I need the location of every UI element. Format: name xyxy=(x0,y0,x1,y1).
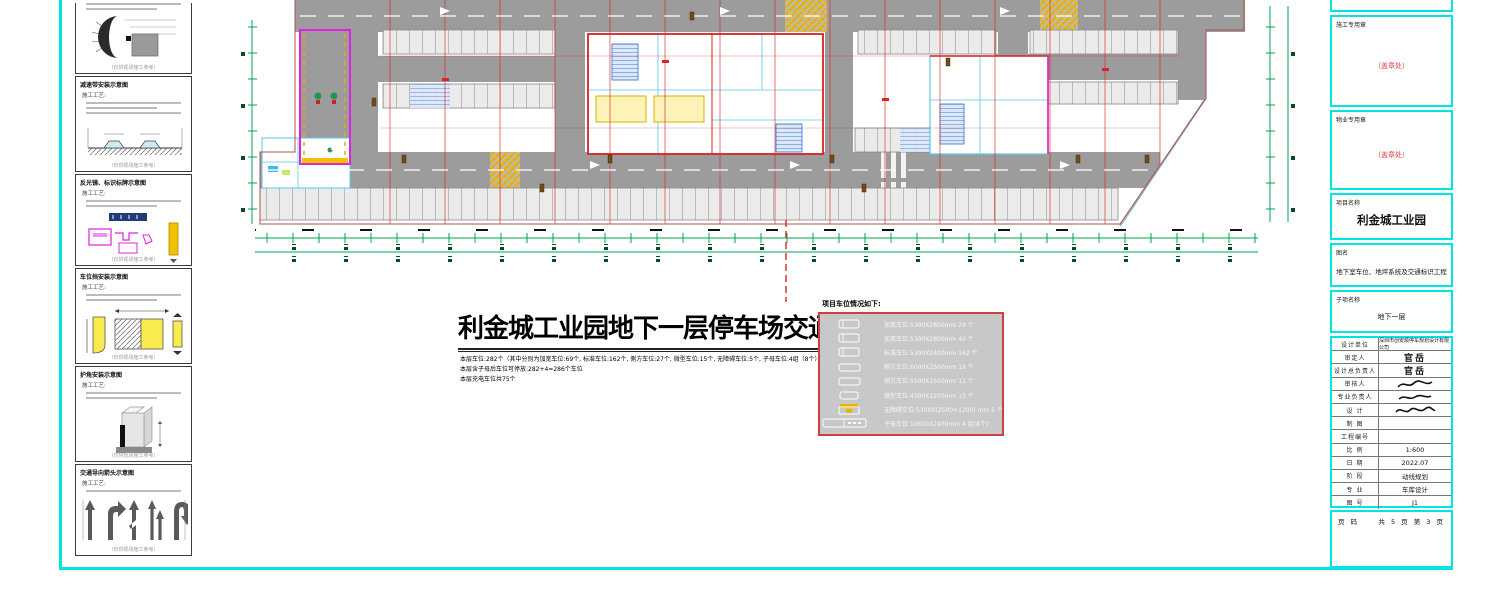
page-label: 页 码 xyxy=(1338,516,1359,526)
field-value: 官岳 xyxy=(1379,364,1451,376)
mini-stall-icon xyxy=(838,390,862,400)
stamp-label: 施工专用章 xyxy=(1332,17,1451,29)
panel-title: 减速带安装示意图 xyxy=(76,77,191,89)
table-row: 审核人 xyxy=(1332,378,1451,391)
wheel-stop-sketch xyxy=(81,305,187,359)
field-value: 动线规划 xyxy=(1379,470,1451,482)
legend-row: 无障碍车位:5300X(2500+1200) mm 5 个 xyxy=(820,402,1002,416)
table-row: 图 号J1 xyxy=(1332,496,1451,509)
field-label: 比 例 xyxy=(1332,444,1379,456)
table-row: 设计单位深圳市创安顺停车规划设计有限公司 xyxy=(1332,338,1451,351)
legend-label: 微型车位:4300X2200mm 15 个 xyxy=(884,391,974,400)
detail-panel-signage: 反光镜、标识标牌示意图 施工工艺: （仅供现场施工参考） xyxy=(75,174,192,266)
field-label: 制 图 xyxy=(1332,417,1379,429)
panel-note-label: 施工工艺: xyxy=(76,89,191,99)
page-value: 共 5 页 第 3 页 xyxy=(1378,516,1445,526)
drawing-name: 地下室车位、地坪系统及交通标识工程 xyxy=(1332,266,1451,276)
table-row: 日 期2022.07 xyxy=(1332,457,1451,470)
field-value: 1:600 xyxy=(1379,444,1451,456)
table-row: 比 例1:600 xyxy=(1332,444,1451,457)
note-line: 本层含子母后车位可停放:282+4=286个车位 xyxy=(460,364,826,373)
panel-title: 车位挡安装示意图 xyxy=(76,269,191,281)
field-label: 工程编号 xyxy=(1332,430,1379,442)
project-name: 利金城工业园 xyxy=(1332,212,1451,228)
field-label: 子项名称 xyxy=(1332,292,1451,304)
legend-label: 无障碍车位:5300X(2500+1200) mm 5 个 xyxy=(884,405,1003,414)
project-name-box: 项目名称 利金城工业园 xyxy=(1330,193,1453,240)
detail-panel-speed-bump: 减速带安装示意图 施工工艺: （仅供现场施工参考） xyxy=(75,76,192,172)
frame-left-border xyxy=(59,0,62,570)
panel-note-label: 施工工艺: xyxy=(76,187,191,197)
note-line: 本层车位:282个（其中分别为加宽车位:69个, 标准车位:162个, 侧方车位… xyxy=(460,354,826,363)
panel-caption: （仅供现场施工参考） xyxy=(76,256,191,263)
legend-row: 标准车位:5300X2400mm 162 个 xyxy=(820,345,1002,359)
accessible-stall-icon xyxy=(838,403,862,415)
field-value: 深圳市创安顺停车规划设计有限公司 xyxy=(1379,338,1451,350)
tandem-stall-icon xyxy=(822,418,868,428)
field-label: 设 计 xyxy=(1332,404,1379,416)
signature-scribble xyxy=(1393,404,1437,416)
legend-label: 侧方车位:5500X2500mm 11 个 xyxy=(884,376,974,385)
table-row: 制 图 xyxy=(1332,417,1451,430)
panel-caption: （仅供现场施工参考） xyxy=(76,162,191,169)
subitem-name: 地下一层 xyxy=(1332,312,1451,322)
detail-panel-corner-guard: 护角安装示意图 施工工艺: （仅供现场施工参考） xyxy=(75,366,192,462)
panel-title: 护角安装示意图 xyxy=(76,367,191,379)
table-row: 专业负责人 xyxy=(1332,391,1451,404)
legend-row: 加宽车位:5300X2800mm 29 个 xyxy=(820,317,1002,331)
legend-label: 标准车位:5300X2400mm 162 个 xyxy=(884,348,978,357)
widened-stall-icon xyxy=(838,333,862,343)
field-label: 设计单位 xyxy=(1332,338,1379,350)
side-stall-icon xyxy=(838,376,862,386)
field-label: 项目名称 xyxy=(1332,195,1451,207)
panel-title: 反光镜、标识标牌示意图 xyxy=(76,175,191,187)
stamp-label: 物业专用章 xyxy=(1332,112,1451,124)
detail-panel-wheel-stop: 车位挡安装示意图 施工工艺: （仅供现场施工参考） xyxy=(75,268,192,364)
pavement-arrows-sketch xyxy=(80,496,188,550)
field-value: 2022.07 xyxy=(1379,457,1451,469)
note-line: 本层充电车位共75个 xyxy=(460,374,826,383)
legend-label: 子母车位:10600X2400mm 4 组(8个) xyxy=(884,419,988,428)
legend-label: 加宽车位:5300X2800mm 40 个 xyxy=(884,334,974,343)
panel-caption: （仅供现场施工参考） xyxy=(76,546,191,553)
signature-scribble xyxy=(1395,391,1435,403)
detail-panel-arrow-markings: 交通导向箭头示意图 施工工艺: （仅供现场施工参考） xyxy=(75,464,192,556)
panel-note-label: 施工工艺: xyxy=(76,379,191,389)
stall-legend: 加宽车位:5300X2800mm 29 个 加宽车位:5300X2800mm 4… xyxy=(818,312,1004,436)
legend-row: 加宽车位:5300X2800mm 40 个 xyxy=(820,331,1002,345)
table-row: 设计总负责人官岳 xyxy=(1332,364,1451,377)
table-row: 工程编号 xyxy=(1332,430,1451,443)
detail-panel-convex-mirror: （仅供现场施工参考） xyxy=(75,3,192,74)
drawing-sheet: { "left_panels": { "note_label": "施工工艺:"… xyxy=(0,0,1510,600)
legend-row: 侧方车位:5500X2500mm 11 个 xyxy=(820,374,1002,388)
panel-caption: （仅供现场施工参考） xyxy=(76,452,191,459)
panel-caption: （仅供现场施工参考） xyxy=(76,64,191,71)
construction-stamp-box: 施工专用章 （盖章处） xyxy=(1330,15,1453,107)
field-label: 设计总负责人 xyxy=(1332,364,1379,376)
field-label: 图名 xyxy=(1332,245,1451,257)
legend-label: 加宽车位:5300X2800mm 29 个 xyxy=(884,320,974,329)
subitem-name-box: 子项名称 地下一层 xyxy=(1330,290,1453,333)
panel-title: 交通导向箭头示意图 xyxy=(76,465,191,477)
field-label: 阶 段 xyxy=(1332,470,1379,482)
table-row: 审定人官岳 xyxy=(1332,351,1451,364)
drawing-name-box: 图名 地下室车位、地坪系统及交通标识工程 xyxy=(1330,243,1453,287)
field-label: 审核人 xyxy=(1332,378,1379,390)
field-label: 日 期 xyxy=(1332,457,1379,469)
field-label: 专业负责人 xyxy=(1332,391,1379,403)
table-row: 设 计 xyxy=(1332,404,1451,417)
parking-plan-drawing xyxy=(240,0,1330,310)
field-label: 图 号 xyxy=(1332,496,1379,509)
field-value: 车库设计 xyxy=(1379,483,1451,495)
titleblock-top-partial-box xyxy=(1330,0,1453,12)
convex-mirror-sketch xyxy=(84,14,184,60)
table-row: 专 业车库设计 xyxy=(1332,483,1451,496)
frame-bottom-border xyxy=(59,567,1333,570)
detail-panel-sidebar: （仅供现场施工参考） 减速带安装示意图 施工工艺: （仅供现场施工参考） 反光镜… xyxy=(75,0,192,565)
field-value: J1 xyxy=(1379,496,1451,509)
legend-row: 微型车位:4300X2200mm 15 个 xyxy=(820,388,1002,402)
page-number-box: 页 码 共 5 页 第 3 页 xyxy=(1330,510,1453,568)
legend-row: 子母车位:10600X2400mm 4 组(8个) xyxy=(820,416,1002,430)
standard-stall-icon xyxy=(838,347,862,357)
panel-note-label: 施工工艺: xyxy=(76,281,191,291)
legend-title: 项目车位情况如下: xyxy=(822,299,881,309)
legend-label: 侧方车位:6000X2500mm 16 个 xyxy=(884,362,974,371)
signature-scribble xyxy=(1395,378,1435,390)
titleblock-table: 设计单位深圳市创安顺停车规划设计有限公司 审定人官岳 设计总负责人官岳 审核人 … xyxy=(1330,336,1453,508)
speed-bump-sketch xyxy=(82,118,186,160)
stamp-placeholder: （盖章处） xyxy=(1332,61,1451,71)
property-stamp-box: 物业专用章 （盖章处） xyxy=(1330,110,1453,190)
panel-caption: （仅供现场施工参考） xyxy=(76,354,191,361)
field-label: 审定人 xyxy=(1332,351,1379,363)
drawing-title: 利金城工业园地下一层停车场交通设施平面图 xyxy=(458,308,820,345)
panel-note-label: 施工工艺: xyxy=(76,477,191,487)
legend-row: 侧方车位:6000X2500mm 16 个 xyxy=(820,360,1002,374)
table-row: 阶 段动线规划 xyxy=(1332,470,1451,483)
side-stall-icon xyxy=(838,362,862,372)
field-value xyxy=(1379,430,1451,442)
field-label: 专 业 xyxy=(1332,483,1379,495)
stamp-placeholder: （盖章处） xyxy=(1332,150,1451,160)
field-value: 官岳 xyxy=(1379,351,1451,363)
field-value xyxy=(1379,417,1451,429)
widened-stall-icon xyxy=(838,319,862,329)
title-underline xyxy=(458,348,820,352)
